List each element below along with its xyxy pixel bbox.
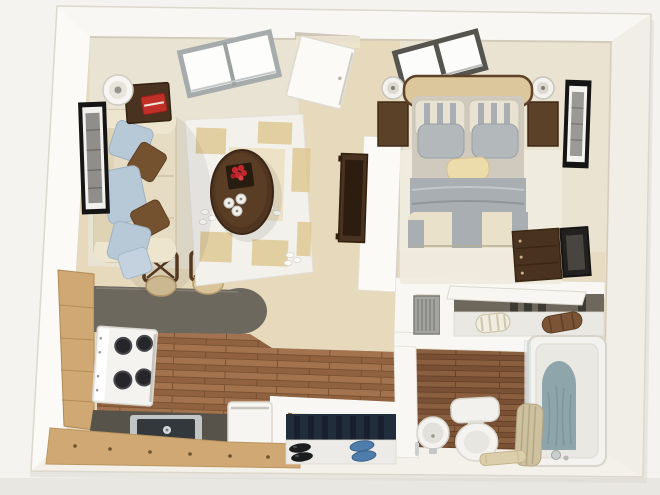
wall-art-right [562, 80, 591, 169]
wall-art-left [78, 102, 110, 215]
sink-faucet [429, 448, 437, 454]
towel-roll [475, 312, 511, 333]
stove [92, 326, 157, 406]
tub-handle [564, 456, 569, 461]
towel-bar [415, 442, 419, 456]
floor-lamp [103, 75, 133, 105]
burner [114, 371, 132, 389]
table-lamp-left [382, 77, 404, 99]
toilet-tank [450, 397, 499, 423]
gray-pillow-left [418, 124, 464, 158]
louvered-utility-door [414, 296, 440, 334]
shoe-closet [286, 414, 396, 464]
gray-pillow-right [472, 124, 518, 158]
nightstand-right [528, 102, 558, 146]
table-lamp-right [532, 77, 554, 99]
burner [136, 335, 152, 351]
red-book [141, 93, 168, 115]
kitchen-cabinets-left [58, 270, 94, 430]
double-bed [404, 76, 532, 248]
striped-duvet [408, 212, 528, 248]
floor-plan-image [0, 0, 660, 495]
closet-interior [447, 286, 604, 336]
breakfast-bar-counter [94, 286, 267, 334]
tub-faucet [552, 451, 561, 460]
dishwasher [228, 402, 272, 446]
tv-frame [560, 227, 590, 277]
floor-plan-svg [0, 0, 660, 495]
burner [115, 337, 132, 354]
dresser [512, 228, 561, 281]
closet-divider-wall [440, 294, 454, 336]
accent-pillow [446, 157, 489, 182]
nightstand-left [378, 102, 408, 146]
burner [136, 369, 153, 386]
